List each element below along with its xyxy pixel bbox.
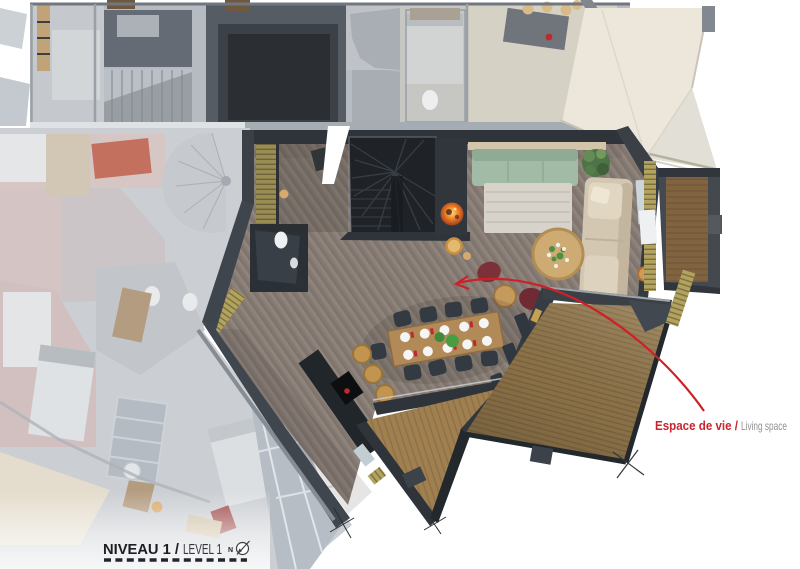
svg-text:Living space: Living space — [741, 419, 787, 433]
svg-text:Espace de vie /: Espace de vie / — [655, 419, 738, 433]
svg-text:NIVEAU 1 /: NIVEAU 1 / — [103, 541, 180, 558]
svg-text:LEVEL 1: LEVEL 1 — [183, 542, 222, 558]
svg-text:N: N — [228, 547, 233, 554]
